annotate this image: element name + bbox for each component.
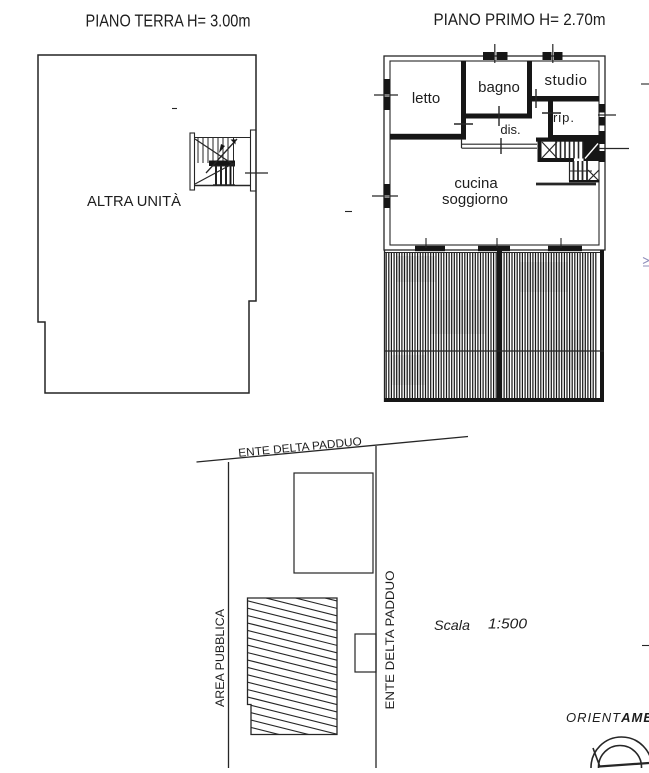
svg-text:dis.: dis. — [500, 122, 520, 137]
svg-text:rip.: rip. — [553, 110, 575, 125]
svg-text:PIANO TERRA H= 3.00m: PIANO TERRA H= 3.00m — [86, 11, 251, 31]
svg-text:cucina: cucina — [454, 175, 498, 192]
svg-text:studio: studio — [544, 72, 587, 89]
svg-text:bagno: bagno — [478, 79, 520, 96]
svg-text:ALTRA UNITÀ: ALTRA UNITÀ — [87, 193, 181, 210]
svg-text:Scala: Scala — [434, 617, 470, 633]
svg-text:PIANO PRIMO H= 2.70m: PIANO PRIMO H= 2.70m — [434, 11, 606, 29]
svg-text:letto: letto — [412, 90, 440, 107]
svg-text:AREA PUBBLICA: AREA PUBBLICA — [215, 609, 227, 707]
svg-text:ORIENTAMENTO: ORIENTAMENTO — [566, 710, 649, 725]
svg-text:soggiorno: soggiorno — [442, 191, 508, 208]
svg-text:ENTE DELTA PADDUO: ENTE DELTA PADDUO — [385, 570, 397, 709]
svg-text:1:500: 1:500 — [488, 617, 527, 633]
